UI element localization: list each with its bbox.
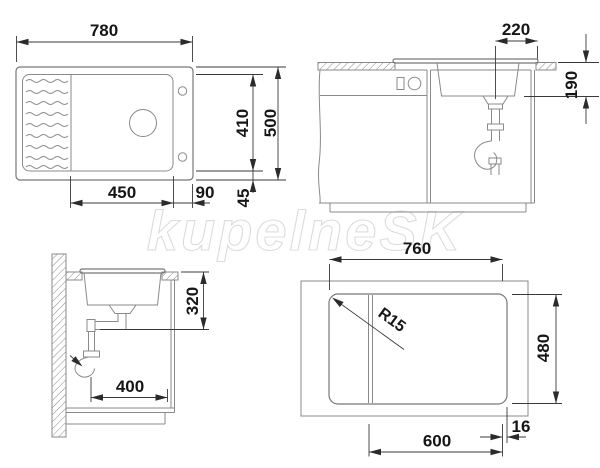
dim-label-320: 320 [183, 287, 202, 315]
plan-view: 780 410 500 45 450 90 [16, 21, 286, 208]
sink-dimension-drawing: kupelneSK 780 [0, 0, 600, 468]
drain-hole [130, 110, 157, 137]
cutout-outline [329, 294, 507, 404]
cutout-dimensions: 760 480 600 16 [330, 239, 563, 457]
control-switch [397, 78, 404, 90]
side-dimensions: 320 400 [91, 272, 209, 402]
dim-label-480: 480 [534, 334, 553, 362]
side-section-view: 320 400 [52, 254, 209, 437]
technical-drawing-sheet: kupelneSK 780 [0, 0, 600, 468]
cabinet-front [318, 70, 534, 212]
front-view: 220 190 [318, 20, 599, 212]
dim-label-45: 45 [234, 189, 253, 208]
tap-hole-top [178, 87, 186, 95]
wall-section [52, 254, 66, 437]
dim-label-R15: R15 [375, 305, 409, 336]
dim-label-90: 90 [196, 183, 215, 202]
radius-callout: R15 [330, 295, 408, 350]
cutout-view: R15 760 480 600 [301, 239, 562, 457]
dim-label-450: 450 [108, 183, 136, 202]
drainboard-waves [26, 80, 68, 169]
dim-label-220: 220 [502, 20, 530, 39]
cabinet-break-edge [318, 70, 320, 203]
drain-trap-front [475, 96, 508, 175]
front-dimensions: 220 190 [496, 20, 600, 124]
sink-rim-side [80, 269, 165, 273]
countertop-left [318, 63, 395, 71]
tap-hole-bottom [178, 153, 186, 161]
dim-label-190: 190 [562, 71, 581, 99]
bowl-section [437, 63, 519, 96]
dim-label-760: 760 [403, 239, 431, 258]
dim-label-16: 16 [512, 417, 531, 436]
dim-label-600: 600 [423, 432, 451, 451]
bowl-side-section [84, 273, 161, 305]
dim-label-400: 400 [116, 377, 144, 396]
sink-rim-section [393, 59, 538, 63]
counter-left-section [66, 272, 82, 280]
dim-label-500: 500 [261, 109, 280, 137]
dim-label-780: 780 [90, 21, 118, 40]
countertop-right [536, 63, 556, 71]
control-knob [408, 77, 421, 90]
drain-trap-side [70, 305, 136, 377]
dim-label-410: 410 [233, 109, 252, 137]
